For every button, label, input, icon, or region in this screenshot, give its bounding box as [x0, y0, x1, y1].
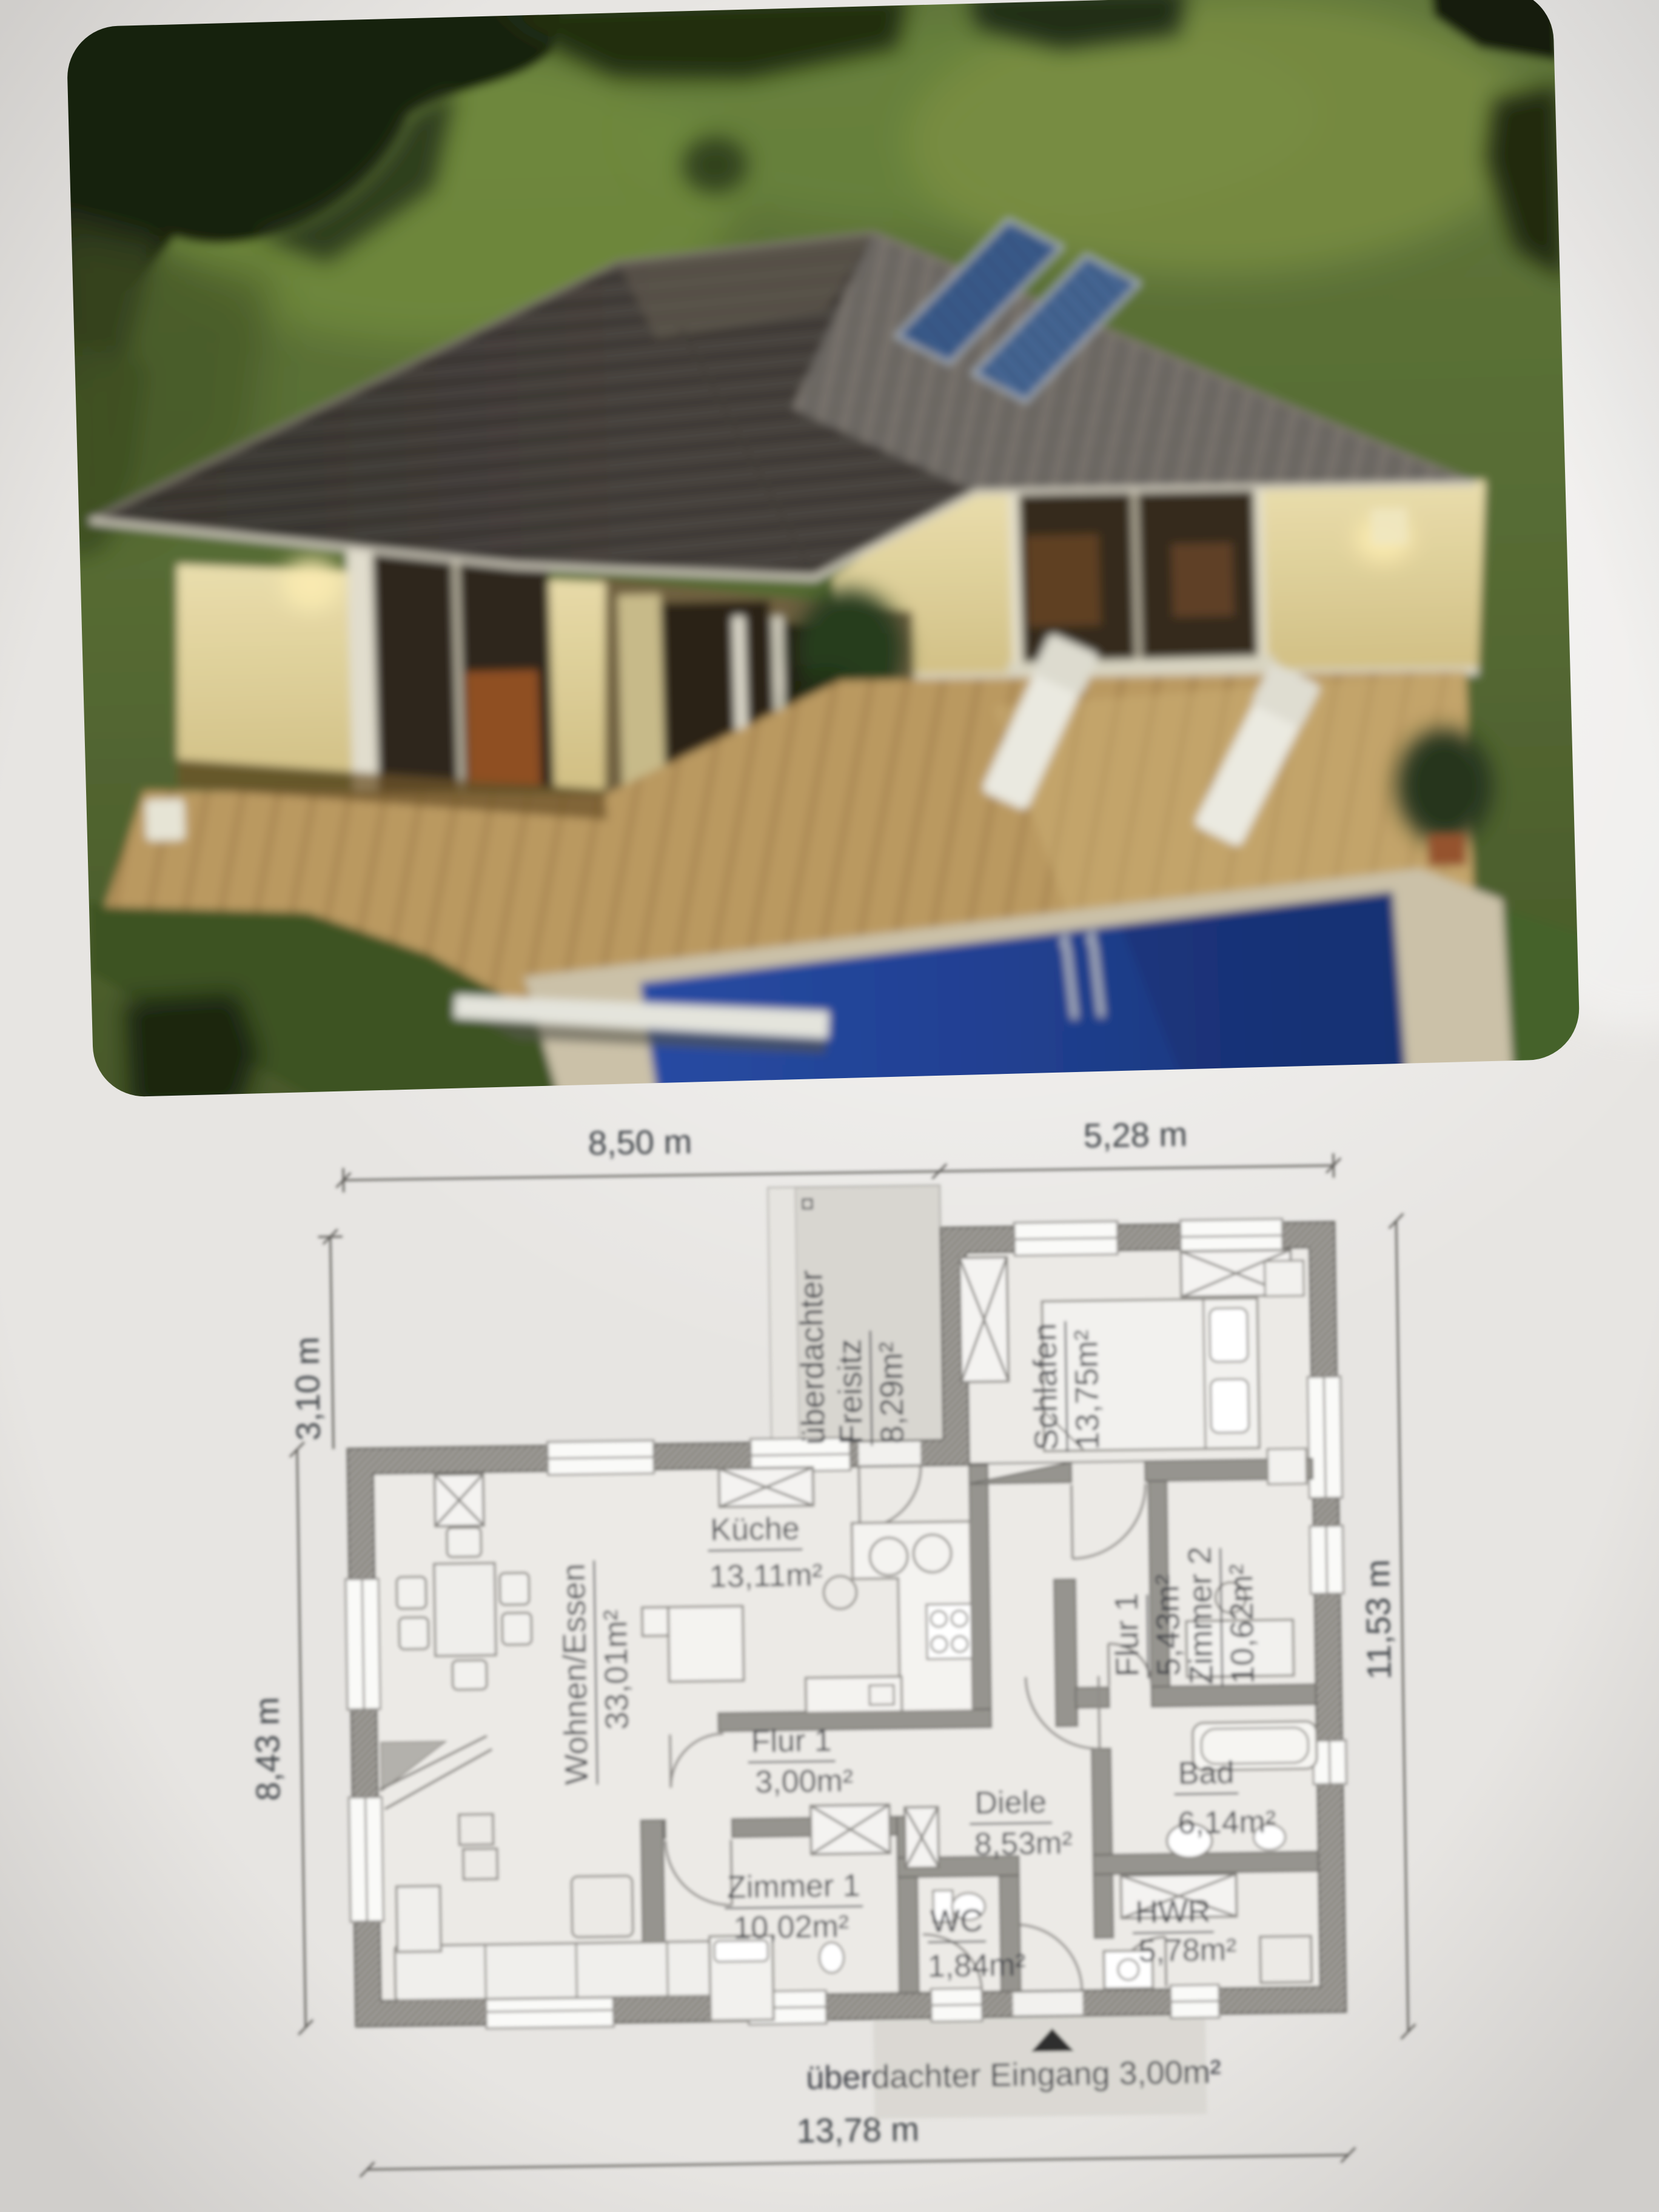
- svg-text:Flur 1: Flur 1: [751, 1723, 832, 1759]
- svg-text:3,00m²: 3,00m²: [755, 1763, 854, 1800]
- svg-text:WC: WC: [930, 1903, 983, 1939]
- svg-text:Freisitz: Freisitz: [831, 1339, 870, 1445]
- svg-text:13,75m²: 13,75m²: [1068, 1330, 1106, 1450]
- svg-text:13,78 m: 13,78 m: [796, 2110, 919, 2150]
- svg-text:Zimmer 2: Zimmer 2: [1181, 1546, 1219, 1685]
- svg-text:6,14m²: 6,14m²: [1178, 1805, 1276, 1841]
- svg-text:8,29m²: 8,29m²: [873, 1341, 910, 1444]
- svg-text:8,43 m: 8,43 m: [247, 1697, 287, 1801]
- svg-text:überdachter Eingang 3,00m²: überdachter Eingang 3,00m²: [806, 2054, 1221, 2096]
- svg-text:1,84m²: 1,84m²: [927, 1948, 1026, 1984]
- svg-text:10,62m²: 10,62m²: [1223, 1564, 1261, 1684]
- svg-text:Wohnen/Essen: Wohnen/Essen: [555, 1563, 595, 1785]
- svg-text:Küche: Küche: [710, 1511, 800, 1547]
- svg-text:5,43m²: 5,43m²: [1149, 1574, 1187, 1677]
- svg-text:11,53 m: 11,53 m: [1358, 1560, 1398, 1680]
- svg-text:33,01m²: 33,01m²: [597, 1609, 635, 1730]
- svg-text:Schlafen: Schlafen: [1027, 1323, 1065, 1451]
- svg-text:HWR: HWR: [1135, 1894, 1211, 1930]
- svg-text:5,28 m: 5,28 m: [1083, 1115, 1187, 1155]
- svg-text:Flur 1: Flur 1: [1108, 1593, 1146, 1677]
- svg-text:10,02m²: 10,02m²: [733, 1909, 850, 1946]
- svg-text:Bad: Bad: [1178, 1755, 1234, 1791]
- svg-text:Zimmer 1: Zimmer 1: [727, 1868, 860, 1905]
- svg-text:8,53m²: 8,53m²: [974, 1826, 1073, 1862]
- svg-text:5,78m²: 5,78m²: [1138, 1932, 1237, 1969]
- svg-text:3,10 m: 3,10 m: [287, 1336, 327, 1441]
- svg-text:Diele: Diele: [974, 1785, 1047, 1821]
- svg-text:8,50 m: 8,50 m: [588, 1122, 692, 1162]
- svg-text:überdachter: überdachter: [793, 1270, 832, 1445]
- svg-text:13,11m²: 13,11m²: [709, 1558, 823, 1595]
